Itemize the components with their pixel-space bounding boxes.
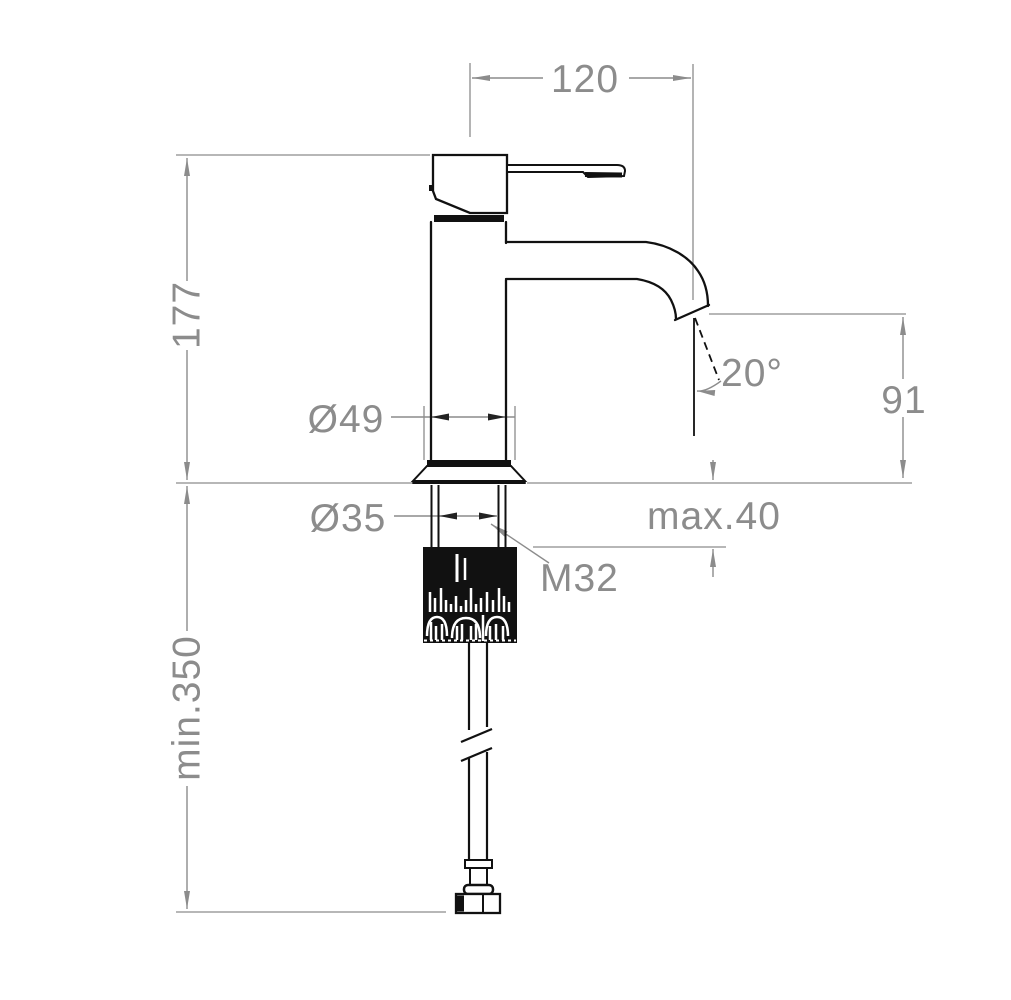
spout-top-edge: [506, 242, 708, 306]
technical-drawing-canvas: 120 177 Ø49 Ø35 M32 max.40 20° 91 min.35…: [0, 0, 1011, 1000]
faucet-dimension-drawing: 120 177 Ø49 Ø35 M32 max.40 20° 91 min.35…: [0, 0, 1011, 1000]
d35-left-arrowhead: [439, 513, 457, 520]
base-escutcheon: [413, 466, 525, 481]
d35-right-arrowhead: [479, 513, 497, 520]
dim-label-min-hose: min.350: [166, 635, 209, 781]
fitting-tube: [470, 868, 487, 885]
dim-label-spout-reach: 120: [551, 58, 619, 101]
dim-label-total-height: 177: [166, 281, 209, 349]
dimension-lines: [176, 63, 912, 912]
dim-label-body-diameter: Ø49: [308, 398, 385, 441]
supply-hose: [461, 643, 492, 860]
spout-bottom-edge: [506, 279, 676, 319]
dim-label-spout-height: 91: [881, 379, 926, 422]
spout-outlet-face: [675, 305, 709, 320]
d49-left-arrowhead: [431, 414, 449, 421]
dim-label-max-deck: max.40: [647, 495, 781, 538]
fitting-collar-lower: [464, 885, 493, 894]
mixer-head: [433, 155, 507, 213]
dim-label-thread-size: M32: [540, 557, 619, 600]
hose-end-fitting: [456, 860, 500, 913]
d49-right-arrowhead: [488, 414, 506, 421]
spout-axis-dashed-line: [695, 318, 719, 380]
head-notch: [429, 185, 434, 191]
hex-nut-shaded-facet: [457, 896, 464, 912]
dim-label-spout-angle: 20°: [721, 352, 783, 395]
dim-label-shank-diameter: Ø35: [310, 497, 387, 540]
lever-grip-edge: [585, 175, 622, 176]
angle-arc-arrow: [697, 381, 721, 391]
head-joint-ring: [434, 215, 504, 222]
hose-break-line-upper: [461, 729, 492, 742]
fitting-collar-upper: [465, 860, 492, 868]
